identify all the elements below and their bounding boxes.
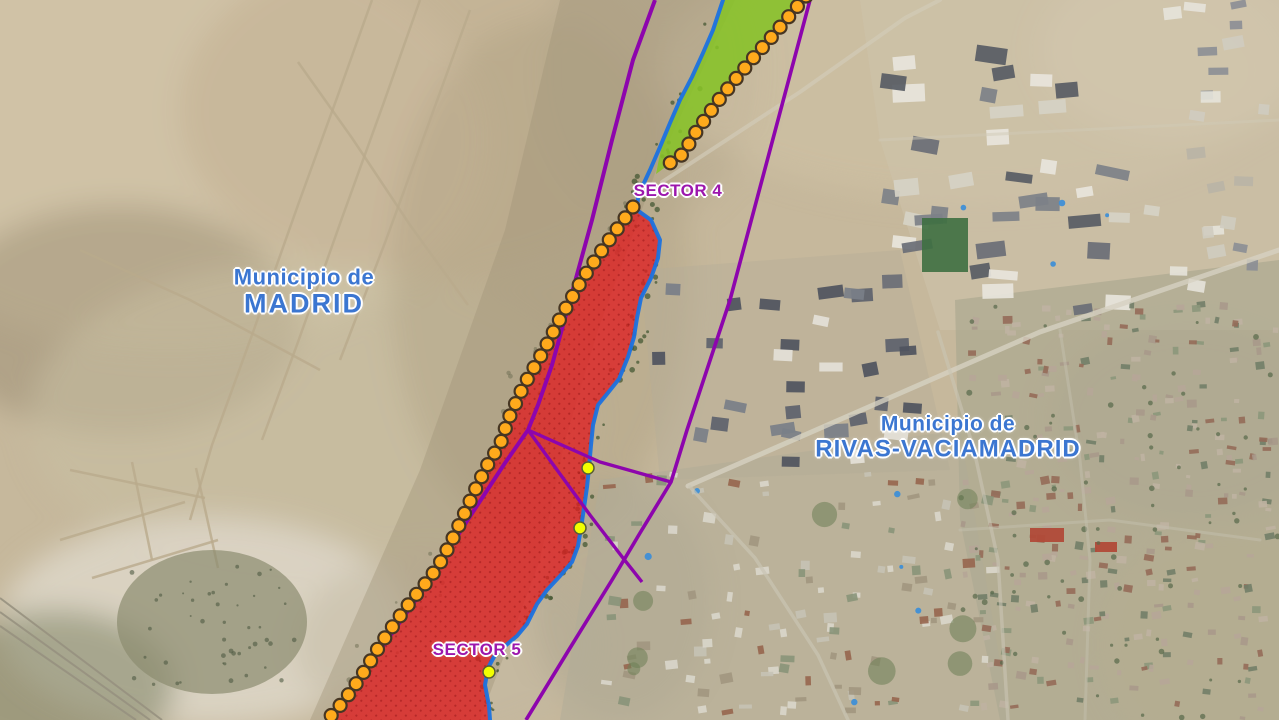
map-overlay-layer [0, 0, 1279, 720]
map-canvas[interactable]: Municipio de MADRID Municipio de RIVAS-V… [0, 0, 1279, 720]
